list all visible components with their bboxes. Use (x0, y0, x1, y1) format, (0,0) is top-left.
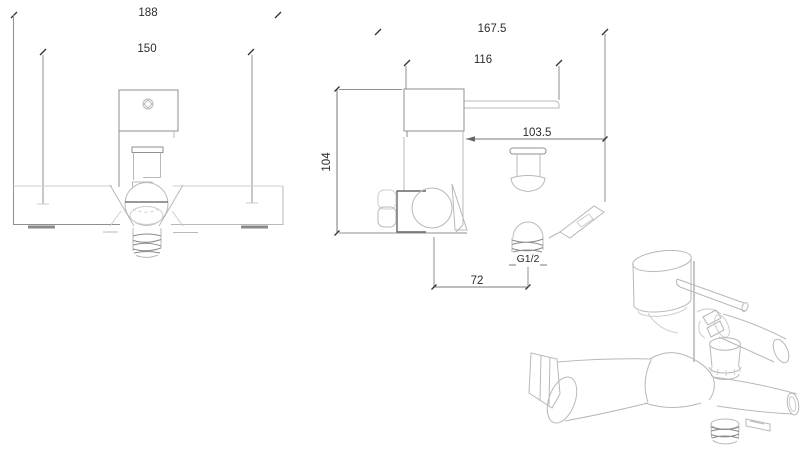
front-view: 188 150 (11, 7, 283, 257)
side-body-height-dim: 104 (321, 152, 333, 172)
front-overall-width-dim: 188 (138, 7, 157, 19)
side-overall-depth-dim: 167.5 (478, 23, 507, 35)
side-view: 167.5 116 104 72 (321, 23, 608, 290)
front-mounting-centers-dim: 150 (137, 43, 156, 55)
technical-drawing: 188 150 (0, 0, 800, 468)
side-outlet-offset-dim: 72 (471, 275, 484, 287)
thread-size-label: G1/2 (517, 253, 540, 265)
drawing-page: 188 150 (0, 0, 800, 468)
perspective-view (529, 247, 800, 443)
side-knob-depth-dim: 103.5 (523, 127, 552, 139)
side-handle-reach-dim: 116 (474, 54, 492, 66)
